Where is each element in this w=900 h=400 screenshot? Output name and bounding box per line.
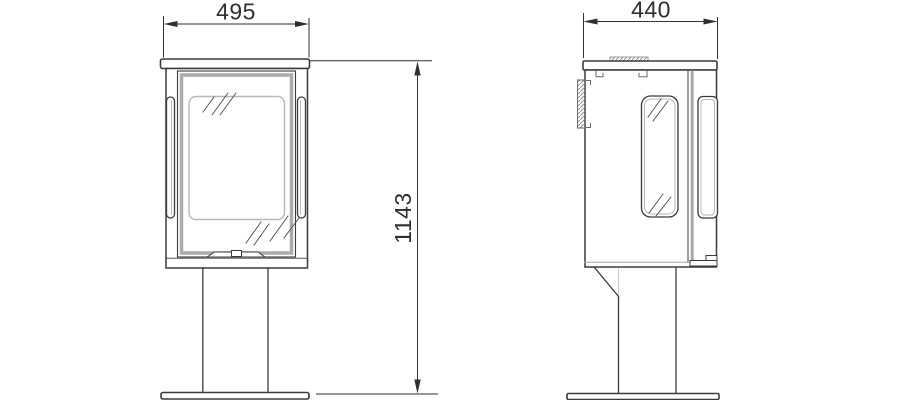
drawing-canvas: 495 440 1143 (0, 0, 900, 400)
side-door-foot (690, 261, 717, 267)
front-pedestal (203, 268, 268, 393)
stove-dimension-drawing: 495 440 1143 (0, 0, 900, 400)
side-base-plate (567, 394, 719, 400)
arrow-down-icon (414, 380, 420, 394)
arrow-up-icon (414, 62, 420, 76)
side-pedestal (595, 268, 677, 394)
front-left-side-strip (167, 97, 175, 218)
arrow-left-icon (584, 19, 598, 25)
arrow-right-icon (704, 19, 718, 25)
front-right-side-strip (298, 97, 306, 218)
front-width-label: 495 (216, 0, 256, 25)
front-top-plate (161, 59, 310, 69)
front-door-frame-inner (182, 75, 292, 253)
front-view (161, 59, 310, 399)
dimension-front-width: 495 (164, 0, 310, 58)
dimension-depth: 440 (584, 0, 718, 59)
side-rear-bracket (578, 80, 586, 128)
depth-label: 440 (631, 0, 671, 23)
arrow-right-icon (295, 21, 309, 27)
dimension-height: 1143 (309, 61, 438, 394)
height-label: 1143 (390, 192, 416, 243)
side-view (567, 57, 719, 400)
side-top-plate (583, 61, 717, 70)
front-latch (232, 251, 242, 257)
side-door-latch (706, 256, 717, 261)
front-base-plate (161, 393, 309, 400)
arrow-left-icon (164, 21, 178, 27)
